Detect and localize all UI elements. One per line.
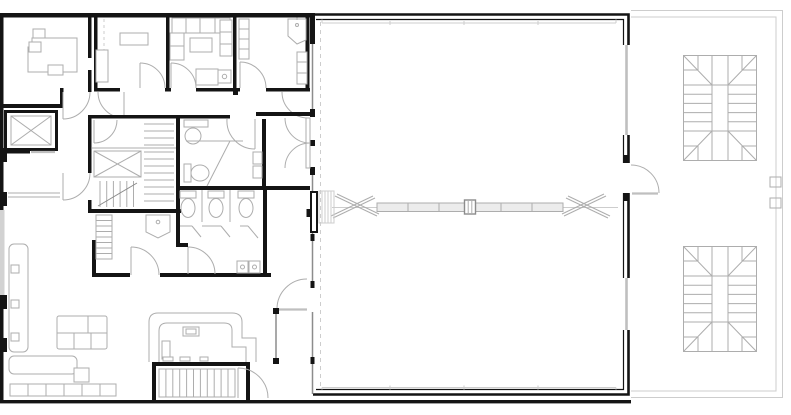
entry-staircase xyxy=(152,357,268,400)
office-desk xyxy=(28,29,77,75)
service-room-door xyxy=(131,247,159,275)
living-door xyxy=(171,63,196,88)
counter-chair xyxy=(162,341,170,359)
hall-terrace-door xyxy=(631,165,659,194)
elevator-shaft xyxy=(0,112,57,154)
core-elevator xyxy=(94,151,141,177)
wc-door xyxy=(188,247,215,274)
wall-cabinet xyxy=(253,166,262,178)
bath-shelf xyxy=(184,120,208,127)
entry-stair-steps xyxy=(159,369,235,397)
wc xyxy=(176,190,271,277)
hand-basin xyxy=(146,215,170,238)
core-stairs xyxy=(92,124,176,207)
upper-bathroom xyxy=(239,18,307,89)
cafe-counter xyxy=(149,313,256,362)
coffee-table xyxy=(190,38,212,52)
hall xyxy=(306,14,660,395)
table-group xyxy=(57,316,107,349)
entry-vestibule-wall xyxy=(273,308,279,364)
top-wall xyxy=(0,13,315,18)
bedroom-door xyxy=(140,63,165,88)
double-swing-doors xyxy=(285,118,310,168)
corridor-wall xyxy=(94,88,310,92)
bathroom-door xyxy=(227,119,255,149)
bench-tables xyxy=(10,384,116,396)
bathroom xyxy=(176,112,310,190)
office-room xyxy=(0,17,92,108)
lounge-hall-door xyxy=(277,279,307,310)
bedroom xyxy=(94,17,165,88)
ladder-stair xyxy=(96,215,112,259)
hall-glazing-top xyxy=(322,20,616,26)
round-basin xyxy=(185,128,201,144)
living-sink-unit xyxy=(196,69,231,85)
toilet xyxy=(184,164,209,182)
upper-bathroom-door xyxy=(240,62,266,88)
core-door xyxy=(94,120,117,143)
terrace xyxy=(631,11,783,398)
wall-bench xyxy=(9,244,89,382)
truss-left-brace xyxy=(331,194,379,218)
u-return-stair-south xyxy=(684,247,757,352)
roof-truss xyxy=(307,191,619,232)
floor-plan-drawing xyxy=(0,0,791,415)
living-room xyxy=(166,17,238,95)
truss-bar xyxy=(377,200,563,214)
corridor-core-door xyxy=(63,173,90,200)
u-return-stair-north xyxy=(684,56,757,161)
toilet-stalls xyxy=(180,190,258,238)
left-wall-shading xyxy=(0,210,5,295)
hall-right-wall-openings xyxy=(620,45,632,330)
corner-sink xyxy=(288,18,306,45)
wash-basins xyxy=(237,261,260,273)
floor-plan-canvas xyxy=(0,0,791,415)
entry-door xyxy=(238,368,268,398)
wall-cabinet xyxy=(253,152,262,164)
service-room xyxy=(92,215,176,277)
truss-right-brace xyxy=(562,194,610,218)
bottom-wall xyxy=(0,400,631,403)
